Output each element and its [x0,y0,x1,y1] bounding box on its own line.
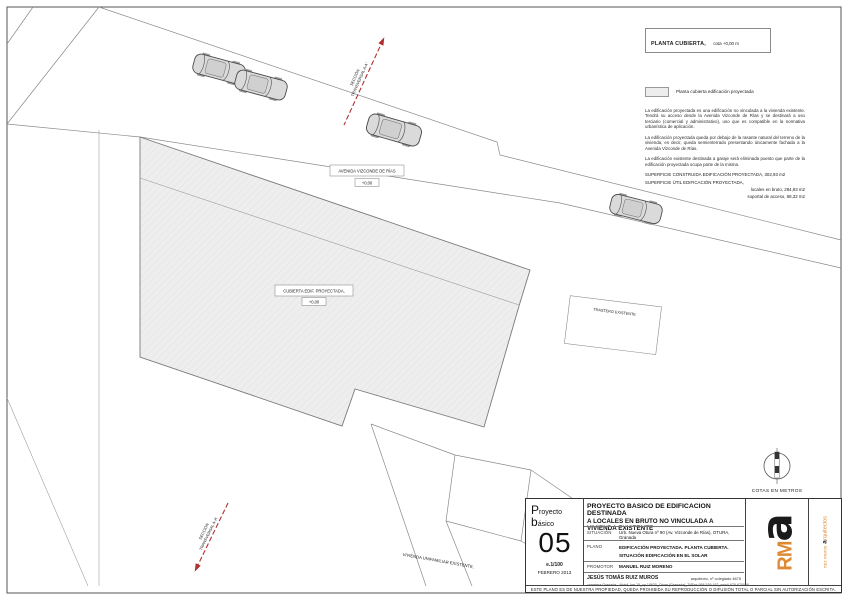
logo-rm-text: RM [774,542,796,571]
roof-swatch [645,87,669,97]
area-soportal: soportal de acceso, 88,32 m2 [645,194,805,200]
architect-name: JESÚS TOMÁS RUIZ MUROS [587,575,658,581]
studio-name-strip: ruiz murosarquitectos [808,499,841,585]
area-util: SUPERFICIE ÚTIL EDIFICACIÓN PROYECTADA, [645,180,805,185]
studio-name-pre: ruiz muros [824,546,829,568]
plano-value-line2: SITUACIÓN EDIFICACIÓN EN EL SOLAR [619,553,707,558]
copyright-disclaimer: ESTE PLANO ES DE NUESTRA PROPIEDAD, QUED… [526,585,841,593]
project-title: PROYECTO BASICO DE EDIFICACION DESTINADA… [587,503,744,532]
building-cota: +0,00 [309,299,320,304]
drawing-date: FEBRERO 2013 [526,570,583,575]
legend-areas: SUPERFICIE CONSTRUIDA EDIFICACIÓN PROYEC… [645,172,805,200]
architect-title: arquitecto, nº colegiado 4675 [691,576,741,581]
legend-paragraph: La edificación proyectada es una edifica… [645,108,805,131]
plano-label: PLANO [587,544,602,549]
promotor-value: MANUEL RUIZ MORENO [619,564,673,569]
road-label: AVENIDA VIZCONDE DE RÍAS [338,169,396,174]
studio-name-rest: rquitectos [823,516,829,540]
studio-logo: RMa [745,499,808,585]
drawing-scale: e.1/100 [526,562,583,568]
legend-title-box: PLANTA CUBIERTA, cota +0,00 m [645,28,771,53]
title-block: Proyecto básico 05 e.1/100 FEBRERO 2013 … [525,498,842,593]
cotas-label: COTAS EN METROS [752,488,803,494]
project-title-line1: PROYECTO BASICO DE EDIFICACION DESTINADA [587,503,744,517]
legend-title: PLANTA CUBIERTA, [651,41,706,47]
studio-name-a: a [822,540,829,544]
legend: PLANTA CUBIERTA, cota +0,00 m Planta cub… [645,28,805,200]
area-construida: SUPERFICIE CONSTRUIDA EDIFICACIÓN PROYEC… [645,172,805,177]
plano-value-line1: EDIFICACIÓN PROYECTADA. PLANTA CUBIERTA. [619,545,729,550]
road-cota: +0,00 [362,180,373,185]
legend-title-cota: cota +0,00 m [713,41,739,46]
swatch-label: Planta cubierta edificación proyectada [676,89,754,94]
situacion-value: Urb. Nueva Otura nº 90 (Av. Vizconde de … [619,530,743,540]
legend-paragraph: La edificación proyectada queda por deba… [645,135,805,152]
building-label: CUBIERTA EDIF. PROYECTADA, [283,289,344,294]
logo-a-text: a [752,513,801,541]
legend-paragraph: La edificación existente destinada a gar… [645,156,805,167]
plan-sheet: TRASTERO EXISTENTE VIVIENDA UNIFAMILIAR … [0,0,848,600]
situacion-label: SITUACIÓN [587,530,612,535]
legend-swatch-row: Planta cubierta edificación proyectada [645,87,805,97]
promotor-label: PROMOTOR [587,564,613,569]
legend-paragraphs: La edificación proyectada es una edifica… [645,108,805,168]
sheet-number: 05 [530,527,580,559]
